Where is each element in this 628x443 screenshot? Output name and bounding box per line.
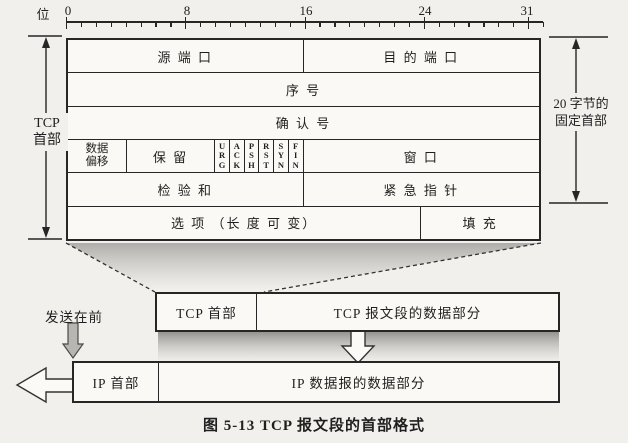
table-shadow (66, 243, 541, 291)
field-data-offset: 数据 偏移 (68, 140, 127, 172)
table-row-ports: 源 端 口 目 的 端 口 (68, 40, 539, 73)
field-urgent-pointer: 紧 急 指 针 (304, 173, 540, 205)
field-source-port: 源 端 口 (68, 40, 304, 72)
tcp-header-measure-label: TCP 首部 (26, 113, 68, 151)
right-measure-arrowhead-up (572, 38, 580, 49)
tcp-segment-bar: TCP 首部 TCP 报文段的数据部分 (155, 292, 560, 332)
figure-tcp-header-format: 位 0 8 16 24 31 (0, 0, 628, 443)
table-row-seq: 序 号 (68, 73, 539, 106)
field-flag-syn: SYN (274, 140, 289, 172)
table-row-checksum: 检 验 和 紧 急 指 针 (68, 173, 539, 206)
table-row-ack: 确 认 号 (68, 107, 539, 140)
ip-data-cell: IP 数据报的数据部分 (159, 363, 558, 401)
field-flag-ack: ACK (230, 140, 245, 172)
field-ack-no: 确 认 号 (68, 107, 539, 139)
table-row-options: 选 项 （长 度 可 变） 填 充 (68, 207, 539, 239)
send-first-down-arrow-icon (63, 323, 83, 358)
send-first-label: 发送在前 (38, 306, 110, 326)
tcp-header-table: 源 端 口 目 的 端 口 序 号 确 认 号 数据 偏移 保 留 URG AC… (66, 38, 541, 241)
ip-header-cell: IP 首部 (74, 363, 159, 401)
ip-datagram-bar: IP 首部 IP 数据报的数据部分 (72, 361, 560, 403)
field-flag-fin: FIN (289, 140, 304, 172)
table-row-flags: 数据 偏移 保 留 URG ACK PSH RST SYN FIN 窗 口 (68, 140, 539, 173)
field-checksum: 检 验 和 (68, 173, 304, 205)
field-reserved: 保 留 (127, 140, 215, 172)
fixed-header-measure-label: 20 字节的 固定首部 (543, 93, 619, 131)
left-measure-arrowhead-down (42, 227, 50, 238)
tcp-segment-data-cell: TCP 报文段的数据部分 (257, 294, 558, 330)
left-measure-arrowhead-up (42, 37, 50, 48)
field-dest-port: 目 的 端 口 (304, 40, 540, 72)
field-padding: 填 充 (421, 207, 539, 239)
figure-caption: 图 5-13 TCP 报文段的首部格式 (0, 414, 628, 435)
tcp-segment-header-cell: TCP 首部 (157, 294, 257, 330)
field-seq-no: 序 号 (68, 73, 539, 105)
field-flag-rst: RST (259, 140, 274, 172)
right-measure-arrowhead-down (572, 191, 580, 202)
field-flag-urg: URG (215, 140, 230, 172)
send-direction-left-arrow-icon (17, 368, 76, 402)
field-window: 窗 口 (304, 140, 540, 172)
field-flag-psh: PSH (245, 140, 260, 172)
field-options: 选 项 （长 度 可 变） (68, 207, 421, 239)
